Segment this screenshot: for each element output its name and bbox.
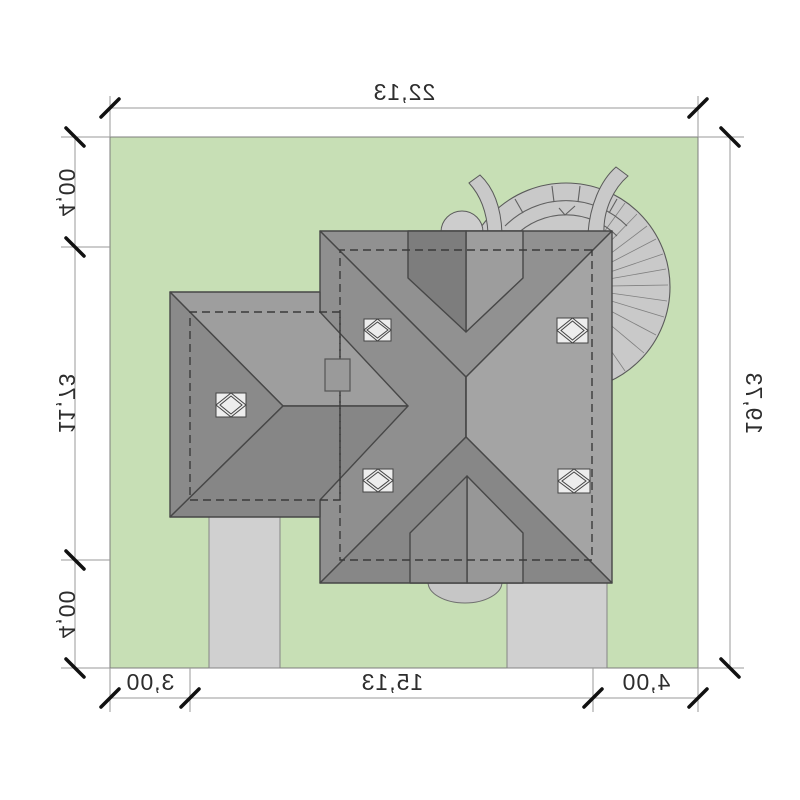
walkway [209,517,280,668]
skylight-4 [558,469,590,493]
mirrored-drawing: 22,13 3,00 15,13 4,00 4,00 11,73 4,00 19… [0,0,800,800]
site-plan-svg: 22,13 3,00 15,13 4,00 4,00 11,73 4,00 19… [0,0,800,800]
dim-label-bottom-2: 15,13 [361,669,424,695]
dim-label-side-1: 4,00 [54,168,80,217]
skylight-3 [363,469,393,492]
dim-label-bottom-3: 4,00 [622,669,671,695]
skylight-1 [364,319,391,341]
skylight-2 [557,318,588,343]
dim-label-side-2: 11,73 [54,373,80,434]
dim-label-total-height: 19,73 [741,372,767,435]
dim-label-side-3: 4,00 [54,590,80,639]
site-plan: 22,13 3,00 15,13 4,00 4,00 11,73 4,00 19… [0,0,800,800]
dim-label-total-width: 22,13 [373,79,436,105]
dim-label-bottom-1: 3,00 [126,669,175,695]
driveway [507,583,607,668]
chimney [325,359,350,391]
skylight-wing [216,393,246,417]
